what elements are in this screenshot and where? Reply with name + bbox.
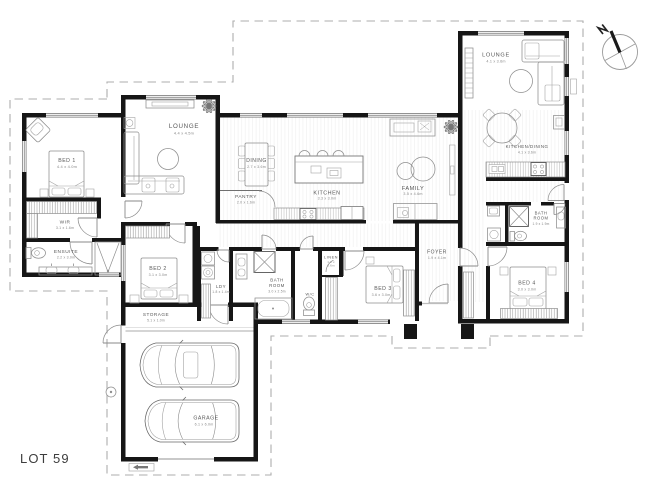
svg-text:LOUNGE: LOUNGE <box>169 123 199 130</box>
svg-text:FOYER: FOYER <box>427 250 447 256</box>
svg-text:5.1 x 1.0m: 5.1 x 1.0m <box>147 319 165 323</box>
svg-text:0.6m: 0.6m <box>327 264 335 268</box>
svg-text:3.3 x 3.0m: 3.3 x 3.0m <box>318 197 337 201</box>
svg-text:6.1 x 6.0m: 6.1 x 6.0m <box>195 423 214 427</box>
svg-text:1.9 x 1.9m: 1.9 x 1.9m <box>533 222 550 226</box>
svg-text:STORAGE: STORAGE <box>143 312 169 317</box>
svg-text:3.6 x 3.0m: 3.6 x 3.0m <box>372 293 391 297</box>
svg-text:3.0 x 2.5m: 3.0 x 2.5m <box>268 290 285 294</box>
svg-text:DINING: DINING <box>246 158 267 164</box>
svg-text:4.1 x 3.6m: 4.1 x 3.6m <box>486 60 505 64</box>
svg-text:ENSUITE: ENSUITE <box>54 249 78 255</box>
svg-text:1.8 x 1.4m: 1.8 x 1.4m <box>212 290 229 294</box>
svg-text:BATH: BATH <box>270 278 283 283</box>
svg-text:BED 4: BED 4 <box>518 281 536 287</box>
svg-text:WIR: WIR <box>60 220 71 226</box>
svg-text:3.1 x 1.6m: 3.1 x 1.6m <box>56 226 74 230</box>
svg-text:GARAGE: GARAGE <box>193 416 218 422</box>
svg-text:BED 2: BED 2 <box>149 266 167 272</box>
svg-text:4.1 x 3.6m: 4.1 x 3.6m <box>518 151 536 155</box>
svg-text:KITCHEN/DINING: KITCHEN/DINING <box>506 144 549 149</box>
svg-text:4.4 x 4.0m: 4.4 x 4.0m <box>57 164 77 169</box>
svg-text:LOT 59: LOT 59 <box>20 451 70 466</box>
svg-text:2.7 x 3.6m: 2.7 x 3.6m <box>247 165 266 169</box>
svg-text:3.1 x 3.0m: 3.1 x 3.0m <box>149 273 168 277</box>
svg-text:2.2 x 3.0m: 2.2 x 3.0m <box>57 256 75 260</box>
svg-text:PANTRY: PANTRY <box>235 194 257 200</box>
svg-text:LDY: LDY <box>216 284 226 289</box>
svg-text:LOUNGE: LOUNGE <box>482 53 510 59</box>
svg-text:4.4 x 4.5m: 4.4 x 4.5m <box>174 131 194 136</box>
svg-text:LINEN: LINEN <box>324 255 338 260</box>
svg-text:1.9 x 4.1m: 1.9 x 4.1m <box>428 256 446 260</box>
svg-text:2.0 x 1.6m: 2.0 x 1.6m <box>237 201 255 205</box>
svg-text:W/C: W/C <box>305 292 314 297</box>
svg-text:ROOM: ROOM <box>269 283 285 288</box>
svg-text:ROOM: ROOM <box>533 216 548 221</box>
svg-text:BED 3: BED 3 <box>374 286 392 292</box>
svg-text:3.5 x 4.6m: 3.5 x 4.6m <box>403 192 422 196</box>
svg-text:3.0 x 3.0m: 3.0 x 3.0m <box>518 288 537 292</box>
